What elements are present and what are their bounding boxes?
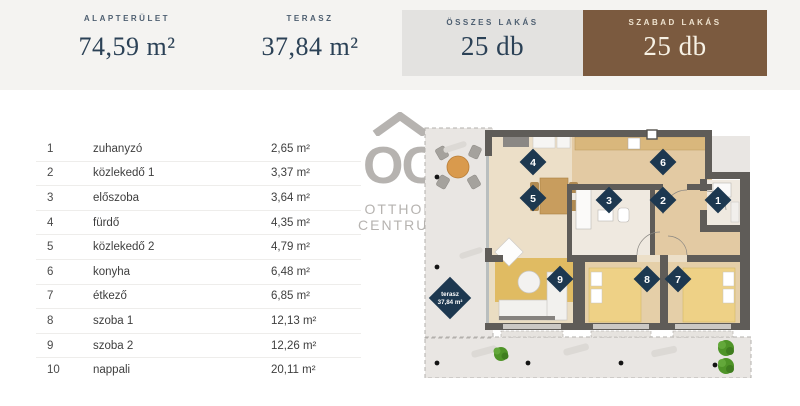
- stat-terrace-label: TERASZ: [230, 14, 390, 23]
- svg-text:9: 9: [557, 274, 563, 286]
- wall-vent: [647, 130, 657, 139]
- row-number: 5: [36, 241, 93, 253]
- filter-free-flats-label: SZABAD LAKÁS: [583, 18, 767, 27]
- room-table: 1zuhanyzó2,65 m² 2közlekedő 13,37 m² 3el…: [36, 137, 361, 382]
- row-number: 3: [36, 192, 93, 204]
- room-area: 12,13 m²: [271, 315, 361, 327]
- floor-plan-drawing: terasz 37,84 m² 1 2 3 4 5 6 7 8 9: [423, 122, 753, 378]
- table-row: 7étkező6,85 m²: [36, 284, 361, 309]
- summary-header: ALAPTERÜLET 74,59 m² TERASZ 37,84 m² ÖSS…: [0, 0, 800, 90]
- bathtub: [576, 189, 591, 229]
- filter-free-flats[interactable]: SZABAD LAKÁS 25 db: [583, 10, 767, 76]
- terrace-door-glass: [486, 156, 489, 248]
- room-name: fürdő: [93, 217, 271, 229]
- garden-strip: [425, 337, 751, 378]
- terrace-badge-area: 37,84 m²: [438, 299, 463, 306]
- filter-all-flats-label: ÖSSZES LAKÁS: [402, 18, 583, 27]
- room-name: szoba 2: [93, 340, 271, 352]
- filter-all-flats[interactable]: ÖSSZES LAKÁS 25 db: [402, 10, 583, 76]
- table-row: 6konyha6,48 m²: [36, 259, 361, 284]
- coffee-table: [518, 271, 540, 293]
- svg-text:7: 7: [675, 274, 681, 286]
- wardrobe: [503, 136, 529, 147]
- room-name: zuhanyzó: [93, 143, 271, 155]
- room-name: szoba 1: [93, 315, 271, 327]
- room-name: közlekedő 2: [93, 241, 271, 253]
- floor-plan: terasz 37,84 m² 1 2 3 4 5 6 7 8 9: [423, 122, 753, 378]
- row-number: 1: [36, 143, 93, 155]
- svg-text:1: 1: [715, 195, 721, 207]
- svg-text:4: 4: [530, 157, 536, 169]
- stat-terrace: TERASZ 37,84 m²: [230, 14, 390, 62]
- stat-terrace-value: 37,84 m²: [230, 32, 390, 62]
- toilet: [618, 208, 629, 222]
- filter-free-flats-value: 25 db: [583, 31, 767, 62]
- row-number: 2: [36, 167, 93, 179]
- svg-text:8: 8: [644, 274, 650, 286]
- row-number: 10: [36, 364, 93, 376]
- kitchen-counter: [575, 137, 711, 150]
- svg-text:3: 3: [606, 195, 612, 207]
- room-name: nappali: [93, 364, 271, 376]
- table-row: 1zuhanyzó2,65 m²: [36, 137, 361, 161]
- terrace-badge-name: terasz: [441, 291, 459, 298]
- row-number: 7: [36, 290, 93, 302]
- room-area: 4,79 m²: [271, 241, 361, 253]
- svg-text:6: 6: [660, 157, 666, 169]
- svg-text:2: 2: [660, 195, 666, 207]
- table-row: 9szoba 212,26 m²: [36, 333, 361, 358]
- svg-text:5: 5: [530, 193, 536, 205]
- room-name: közlekedő 1: [93, 167, 271, 179]
- table-row: 5közlekedő 24,79 m²: [36, 234, 361, 259]
- table-row: 2közlekedő 13,37 m²: [36, 161, 361, 186]
- room-name: étkező: [93, 290, 271, 302]
- room-name: konyha: [93, 266, 271, 278]
- room-area: 12,26 m²: [271, 340, 361, 352]
- kitchen-sink: [628, 138, 640, 149]
- room-name: előszoba: [93, 192, 271, 204]
- table-row: 10nappali20,11 m²: [36, 357, 361, 382]
- terrace-table: [447, 156, 469, 178]
- outside-pocket: [712, 136, 750, 172]
- table-row: 4fürdő4,35 m²: [36, 210, 361, 235]
- row-number: 4: [36, 217, 93, 229]
- floorplan-page: ALAPTERÜLET 74,59 m² TERASZ 37,84 m² ÖSS…: [0, 0, 800, 406]
- filter-all-flats-value: 25 db: [402, 31, 583, 62]
- stat-floor-area-value: 74,59 m²: [47, 32, 207, 62]
- row-number: 8: [36, 315, 93, 327]
- room-area: 20,11 m²: [271, 364, 361, 376]
- chevron-logo-icon: [371, 112, 429, 136]
- row-number: 9: [36, 340, 93, 352]
- row-number: 6: [36, 266, 93, 278]
- stat-floor-area: ALAPTERÜLET 74,59 m²: [47, 14, 207, 62]
- room-area: 6,85 m²: [271, 290, 361, 302]
- room-area: 6,48 m²: [271, 266, 361, 278]
- table-row: 8szoba 112,13 m²: [36, 308, 361, 333]
- table-row: 3előszoba3,64 m²: [36, 185, 361, 210]
- stat-floor-area-label: ALAPTERÜLET: [47, 14, 207, 23]
